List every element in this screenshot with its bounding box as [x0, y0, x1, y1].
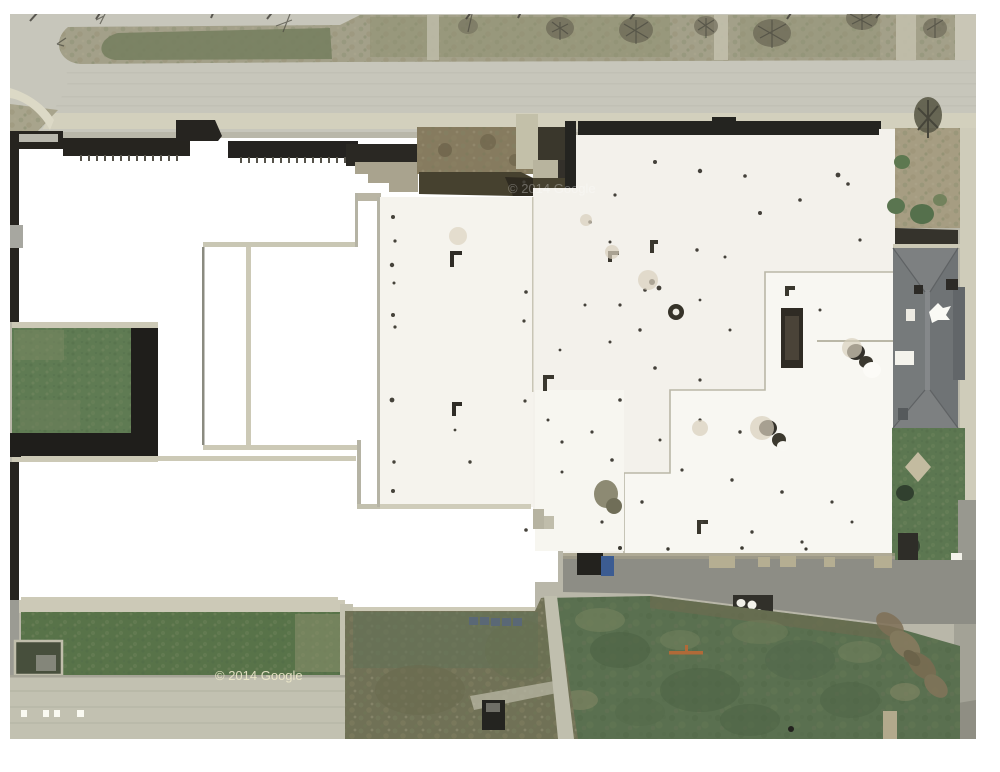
svg-text:© 2014 Google: © 2014 Google — [508, 181, 596, 196]
svg-text:© 2014 Google: © 2014 Google — [215, 668, 303, 683]
